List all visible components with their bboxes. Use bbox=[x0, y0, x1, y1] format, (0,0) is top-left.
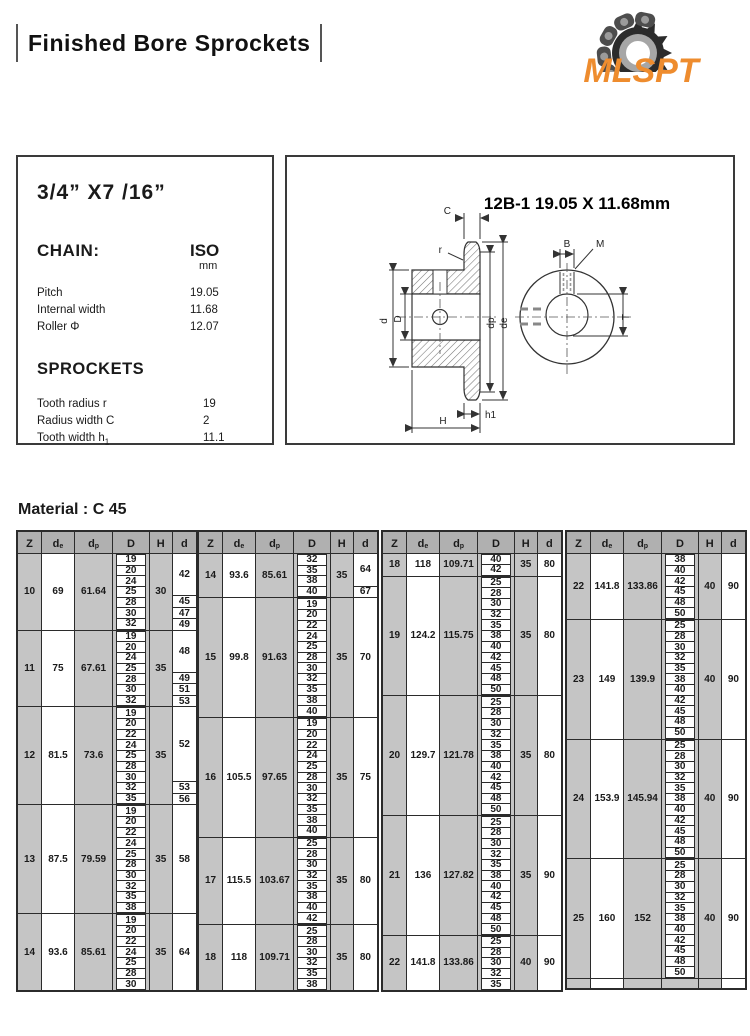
cell-hub-diameter: 80 bbox=[538, 554, 561, 576]
cell-hub-width: 40 bbox=[699, 859, 722, 978]
hub-diameter-segment: 75 bbox=[354, 718, 377, 837]
hub-diameter-segment: 45 bbox=[173, 595, 196, 606]
bore-cell: 32 bbox=[116, 695, 145, 707]
table-group: 2516015225283032353840424548504090 bbox=[567, 859, 745, 979]
company-logo: MLSPT bbox=[562, 6, 722, 102]
drawing-box: 12B-1 19.05 X 11.68mm C r d D bbox=[285, 155, 735, 445]
cell-tip-diameter: 153.9 bbox=[591, 740, 624, 859]
cell-hub-width: 35 bbox=[150, 914, 173, 990]
sprocket-spec-rows: Tooth radius r 19 Radius width C 2 Tooth… bbox=[37, 396, 252, 450]
cell-hub-width: 35 bbox=[515, 816, 538, 935]
material-label: Material : C 45 bbox=[18, 501, 126, 519]
cell-hub-width: 35 bbox=[150, 805, 173, 913]
cell-bores: 4042 bbox=[478, 554, 514, 576]
cell-teeth: 14 bbox=[18, 914, 42, 990]
table-header-row: ZdedpDHd bbox=[567, 532, 745, 554]
cell-teeth: 21 bbox=[383, 816, 407, 935]
cell-pitch-diameter: 73.6 bbox=[75, 707, 113, 804]
cell-tip-diameter: 105.5 bbox=[223, 718, 256, 837]
dim-label-d: d bbox=[379, 318, 390, 324]
page-title: Finished Bore Sprockets bbox=[28, 30, 310, 57]
title-bar-left bbox=[16, 24, 18, 62]
cell-pitch-diameter: 61.64 bbox=[75, 554, 113, 630]
spec-row-label: Internal width bbox=[37, 302, 190, 319]
spec-row: Roller Φ 12.07 bbox=[37, 319, 252, 336]
cell-hub-width: 35 bbox=[515, 554, 538, 576]
standard-name: ISO bbox=[190, 241, 252, 261]
cell-tip-diameter: 141.8 bbox=[407, 936, 440, 990]
spec-row-value: 19 bbox=[190, 396, 252, 413]
sprocket-table-4: ZdedpDHd22141.8133.863840424548504090231… bbox=[565, 530, 747, 990]
cell-hub-diameter: 80 bbox=[354, 838, 377, 924]
cell-hub-diameter: 70 bbox=[354, 598, 377, 717]
column-header: dp bbox=[256, 532, 294, 553]
cell-tip-diameter: 81.5 bbox=[42, 707, 75, 804]
dim-label-M: M bbox=[596, 239, 604, 250]
cell-teeth: 18 bbox=[199, 925, 223, 990]
dim-label-r: r bbox=[439, 245, 443, 256]
cell-bores: 19202425283032 bbox=[113, 554, 149, 630]
table-header-row: ZdedpDHd bbox=[383, 532, 561, 554]
chain-standard: ISO mm bbox=[190, 241, 252, 272]
cell-hub-diameter: 80 bbox=[538, 577, 561, 696]
hub-diameter-segment: 49 bbox=[173, 618, 196, 629]
hub-diameter-segment: 53 bbox=[173, 781, 196, 793]
table-group: 19124.2115.7525283032353840424548503580 bbox=[383, 577, 561, 697]
cell-hub-width: 30 bbox=[150, 554, 173, 630]
table-group: 1281.573.619202224252830323535525356 bbox=[18, 707, 196, 805]
cell-teeth: 16 bbox=[199, 718, 223, 837]
table-group: 117567.61192024252830323548495153 bbox=[18, 631, 196, 708]
bore-cell: 42 bbox=[481, 564, 510, 575]
table-group: 21136127.8225283032353840424548503590 bbox=[383, 816, 561, 936]
cell-bores: 192022242528303235 bbox=[113, 707, 149, 804]
catalog-page: Finished Bore Sprockets bbox=[0, 0, 750, 1036]
hub-diameter-segment: 80 bbox=[354, 838, 377, 924]
cell-hub-width: 35 bbox=[150, 631, 173, 707]
bore-cell: 50 bbox=[481, 803, 510, 815]
hub-diameter-segment: 90 bbox=[722, 554, 745, 619]
column-header: dp bbox=[624, 532, 662, 553]
table-header-row: ZdedpDHd bbox=[199, 532, 377, 554]
column-header: de bbox=[407, 532, 440, 553]
cell-pitch-diameter: 115.75 bbox=[440, 577, 478, 696]
hub-diameter-segment: 90 bbox=[722, 859, 745, 978]
cell-hub-diameter: 58 bbox=[173, 805, 196, 913]
cell-hub-diameter: 48495153 bbox=[173, 631, 196, 707]
title-bar-right bbox=[320, 24, 322, 62]
table-group: 1387.579.59192022242528303235383558 bbox=[18, 805, 196, 914]
drawing-title: 12B-1 19.05 X 11.68mm bbox=[484, 194, 670, 213]
bore-cell: 35 bbox=[481, 978, 510, 990]
hub-diameter-segment: 51 bbox=[173, 683, 196, 694]
cell-hub-width: 35 bbox=[331, 925, 354, 990]
cell-tip-diameter: 160 bbox=[591, 859, 624, 978]
table-group: 106961.64192024252830323042454749 bbox=[18, 554, 196, 631]
sprockets-section-label: SPROCKETS bbox=[37, 360, 252, 379]
hub-diameter-segment: 70 bbox=[354, 598, 377, 717]
bore-cell: 30 bbox=[116, 978, 145, 990]
hub-diameter-segment: 52 bbox=[173, 707, 196, 781]
hub-diameter-segment: 58 bbox=[173, 805, 196, 913]
cell-tip-diameter: 87.5 bbox=[42, 805, 75, 913]
bore-cell: 50 bbox=[665, 847, 694, 859]
dim-label-T: T bbox=[621, 314, 632, 320]
column-header: Z bbox=[199, 532, 223, 553]
dim-label-de: de bbox=[499, 317, 510, 329]
cell-tip-diameter: 149 bbox=[591, 620, 624, 739]
spec-row: Radius width C 2 bbox=[37, 413, 252, 430]
cell-teeth: 18 bbox=[383, 554, 407, 576]
cell-tip-diameter: 93.6 bbox=[223, 554, 256, 597]
column-header: dp bbox=[75, 532, 113, 553]
cell-hub-diameter: 6467 bbox=[354, 554, 377, 597]
table-group: 23149139.925283032353840424548504090 bbox=[567, 620, 745, 740]
cell-hub-width: 35 bbox=[515, 696, 538, 815]
spec-row-value: 2 bbox=[190, 413, 252, 430]
cell-bores: 2528303235384042454850 bbox=[662, 740, 698, 859]
cell-hub-diameter: 90 bbox=[722, 554, 745, 619]
empty-cell bbox=[624, 979, 662, 988]
chain-size-title: 3/4” X7 /16” bbox=[37, 181, 252, 205]
spec-row-label: Pitch bbox=[37, 285, 190, 302]
cell-hub-diameter: 525356 bbox=[173, 707, 196, 804]
cell-tip-diameter: 129.7 bbox=[407, 696, 440, 815]
table-group: 1493.685.61192022242528303564 bbox=[18, 914, 196, 990]
cell-hub-width: 35 bbox=[331, 838, 354, 924]
cell-bores: 19202224252830 bbox=[113, 914, 149, 990]
cell-hub-width: 35 bbox=[331, 718, 354, 837]
cell-pitch-diameter: 133.86 bbox=[624, 554, 662, 619]
cell-teeth: 14 bbox=[199, 554, 223, 597]
empty-cell bbox=[591, 979, 624, 988]
empty-cell bbox=[662, 979, 698, 988]
hub-diameter-segment: 48 bbox=[173, 631, 196, 672]
cell-bores: 384042454850 bbox=[662, 554, 698, 619]
cell-bores: 19202425283032 bbox=[113, 631, 149, 707]
cell-pitch-diameter: 103.67 bbox=[256, 838, 294, 924]
table-group: 24153.9145.9425283032353840424548504090 bbox=[567, 740, 745, 860]
cell-teeth: 10 bbox=[18, 554, 42, 630]
cell-tip-diameter: 118 bbox=[223, 925, 256, 990]
cell-teeth: 22 bbox=[383, 936, 407, 990]
sprocket-table-2: ZdedpDHd1493.685.61323538403564671599.89… bbox=[197, 530, 379, 992]
sprocket-table-3: ZdedpDHd18118109.714042358019124.2115.75… bbox=[381, 530, 563, 992]
cell-tip-diameter: 136 bbox=[407, 816, 440, 935]
bore-cell: 50 bbox=[665, 607, 694, 619]
cell-pitch-diameter: 91.63 bbox=[256, 598, 294, 717]
chain-section-header: CHAIN: ISO mm bbox=[37, 241, 252, 272]
cell-teeth: 13 bbox=[18, 805, 42, 913]
cell-hub-width: 35 bbox=[331, 554, 354, 597]
cell-tip-diameter: 99.8 bbox=[223, 598, 256, 717]
cell-bores: 2528303235384042454850 bbox=[662, 620, 698, 739]
cell-hub-diameter: 90 bbox=[538, 936, 561, 990]
cell-teeth: 22 bbox=[567, 554, 591, 619]
dim-label-h1: h1 bbox=[485, 410, 497, 421]
table-group: 1493.685.6132353840356467 bbox=[199, 554, 377, 598]
cell-teeth: 20 bbox=[383, 696, 407, 815]
spec-row-label: Radius width C bbox=[37, 413, 190, 430]
hub-diameter-segment: 42 bbox=[173, 554, 196, 595]
cell-pitch-diameter: 85.61 bbox=[256, 554, 294, 597]
chain-section-label: CHAIN: bbox=[37, 241, 190, 261]
table-footer-row bbox=[567, 979, 745, 988]
cell-tip-diameter: 69 bbox=[42, 554, 75, 630]
spec-row: Pitch 19.05 bbox=[37, 285, 252, 302]
table-group: 16105.597.6519202224252830323538403575 bbox=[199, 718, 377, 838]
cell-pitch-diameter: 121.78 bbox=[440, 696, 478, 815]
cell-hub-width: 40 bbox=[699, 620, 722, 739]
hub-diameter-segment: 80 bbox=[538, 577, 561, 696]
column-header: H bbox=[515, 532, 538, 553]
spec-row: Internal width 11.68 bbox=[37, 302, 252, 319]
cell-hub-diameter: 64 bbox=[173, 914, 196, 990]
chain-spec-rows: Pitch 19.05 Internal width 11.68 Roller … bbox=[37, 285, 252, 336]
table-group: 18118109.7140423580 bbox=[383, 554, 561, 577]
cell-teeth: 19 bbox=[383, 577, 407, 696]
chain-spec-box: 3/4” X7 /16” CHAIN: ISO mm Pitch 19.05 I… bbox=[16, 155, 274, 445]
cell-hub-diameter: 90 bbox=[722, 859, 745, 978]
hub-diameter-segment: 67 bbox=[354, 586, 377, 598]
hub-diameter-segment: 90 bbox=[538, 936, 561, 990]
spec-row-value: 11.68 bbox=[190, 302, 252, 319]
bore-cell: 50 bbox=[665, 966, 694, 978]
cell-teeth: 25 bbox=[567, 859, 591, 978]
spec-row-value: 12.07 bbox=[190, 319, 252, 336]
cell-hub-width: 40 bbox=[515, 936, 538, 990]
sprocket-table-1: ZdedpDHd106961.6419202425283032304245474… bbox=[16, 530, 198, 992]
cell-bores: 2528303235384042 bbox=[294, 838, 330, 924]
table-group: 22141.8133.863840424548504090 bbox=[567, 554, 745, 620]
table-header-row: ZdedpDHd bbox=[18, 532, 196, 554]
cell-hub-diameter: 80 bbox=[538, 696, 561, 815]
hub-diameter-segment: 80 bbox=[538, 554, 561, 576]
column-header: d bbox=[354, 532, 377, 553]
logo-text: MLSPT bbox=[562, 52, 720, 91]
cell-pitch-diameter: 97.65 bbox=[256, 718, 294, 837]
bore-cell: 38 bbox=[297, 978, 326, 990]
cell-pitch-diameter: 109.71 bbox=[440, 554, 478, 576]
cell-pitch-diameter: 139.9 bbox=[624, 620, 662, 739]
cell-bores: 1920222425283032353840 bbox=[294, 718, 330, 837]
cell-bores: 252830323538 bbox=[294, 925, 330, 990]
cell-bores: 2528303235384042454850 bbox=[478, 816, 514, 935]
cell-hub-diameter: 90 bbox=[722, 740, 745, 859]
cell-hub-diameter: 75 bbox=[354, 718, 377, 837]
dim-label-B: B bbox=[564, 239, 571, 250]
column-header: d bbox=[722, 532, 745, 553]
hub-diameter-segment: 90 bbox=[538, 816, 561, 935]
column-header: Z bbox=[567, 532, 591, 553]
empty-cell bbox=[699, 979, 722, 988]
column-header: d bbox=[538, 532, 561, 553]
column-header: D bbox=[294, 532, 330, 553]
spec-row-value: 19.05 bbox=[190, 285, 252, 302]
table-group: 17115.5103.6725283032353840423580 bbox=[199, 838, 377, 925]
empty-cell bbox=[567, 979, 591, 988]
page-header: Finished Bore Sprockets bbox=[16, 24, 322, 62]
dim-label-c: C bbox=[444, 206, 451, 217]
hub-diameter-segment: 64 bbox=[354, 554, 377, 586]
cell-pitch-diameter: 127.82 bbox=[440, 816, 478, 935]
hub-diameter-segment: 53 bbox=[173, 695, 196, 706]
cell-hub-diameter: 90 bbox=[722, 620, 745, 739]
column-header: D bbox=[478, 532, 514, 553]
cell-bores: 2528303235384042454850 bbox=[662, 859, 698, 978]
spec-row-label: Roller Φ bbox=[37, 319, 190, 336]
cell-bores: 19202224252830323538 bbox=[113, 805, 149, 913]
cell-hub-width: 35 bbox=[331, 598, 354, 717]
cell-hub-width: 35 bbox=[515, 577, 538, 696]
cell-hub-width: 40 bbox=[699, 740, 722, 859]
cell-teeth: 11 bbox=[18, 631, 42, 707]
cell-bores: 2528303235 bbox=[478, 936, 514, 990]
spec-row-label: Tooth radius r bbox=[37, 396, 190, 413]
dim-label-dp: dp bbox=[486, 317, 497, 329]
cell-hub-width: 35 bbox=[150, 707, 173, 804]
hub-diameter-segment: 49 bbox=[173, 672, 196, 683]
spec-row-value: 11.1 bbox=[190, 430, 252, 450]
bore-cell: 42 bbox=[297, 912, 326, 924]
cell-teeth: 17 bbox=[199, 838, 223, 924]
cell-pitch-diameter: 85.61 bbox=[75, 914, 113, 990]
bore-cell: 50 bbox=[665, 727, 694, 739]
cell-teeth: 15 bbox=[199, 598, 223, 717]
technical-drawing: 12B-1 19.05 X 11.68mm C r d D bbox=[287, 157, 733, 443]
cell-pitch-diameter: 79.59 bbox=[75, 805, 113, 913]
cell-tip-diameter: 93.6 bbox=[42, 914, 75, 990]
column-header: H bbox=[699, 532, 722, 553]
bore-cell: 35 bbox=[116, 793, 145, 805]
cell-hub-diameter: 42454749 bbox=[173, 554, 196, 630]
hub-diameter-segment: 56 bbox=[173, 793, 196, 805]
hub-diameter-segment: 80 bbox=[538, 696, 561, 815]
cell-pitch-diameter: 145.94 bbox=[624, 740, 662, 859]
column-header: Z bbox=[383, 532, 407, 553]
bore-cell: 50 bbox=[481, 923, 510, 935]
hub-diameter-segment: 80 bbox=[354, 925, 377, 990]
cell-bores: 32353840 bbox=[294, 554, 330, 597]
standard-unit: mm bbox=[199, 260, 252, 272]
column-header: de bbox=[42, 532, 75, 553]
spec-row: Tooth radius r 19 bbox=[37, 396, 252, 413]
bore-cell: 50 bbox=[481, 684, 510, 696]
table-group: 22141.8133.8625283032354090 bbox=[383, 936, 561, 990]
cell-hub-diameter: 80 bbox=[354, 925, 377, 990]
column-header: dp bbox=[440, 532, 478, 553]
spec-row: Tooth width h1 11.1 bbox=[37, 430, 252, 450]
column-header: H bbox=[331, 532, 354, 553]
column-header: D bbox=[662, 532, 698, 553]
spec-row-label: Tooth width h1 bbox=[37, 430, 190, 450]
hub-diameter-segment: 90 bbox=[722, 740, 745, 859]
cell-pitch-diameter: 133.86 bbox=[440, 936, 478, 990]
cell-bores: 2528303235384042454850 bbox=[478, 577, 514, 696]
cell-tip-diameter: 115.5 bbox=[223, 838, 256, 924]
cell-tip-diameter: 124.2 bbox=[407, 577, 440, 696]
bore-cell: 40 bbox=[297, 825, 326, 837]
column-header: Z bbox=[18, 532, 42, 553]
section-lower-hatch bbox=[412, 340, 480, 400]
cell-tip-diameter: 141.8 bbox=[591, 554, 624, 619]
bore-cell: 40 bbox=[297, 705, 326, 717]
column-header: d bbox=[173, 532, 196, 553]
cell-bores: 2528303235384042454850 bbox=[478, 696, 514, 815]
column-header: D bbox=[113, 532, 149, 553]
bore-cell: 38 bbox=[116, 902, 145, 914]
dim-label-H: H bbox=[439, 416, 446, 427]
cell-tip-diameter: 75 bbox=[42, 631, 75, 707]
column-header: de bbox=[223, 532, 256, 553]
cell-pitch-diameter: 109.71 bbox=[256, 925, 294, 990]
table-group: 1599.891.6319202224252830323538403570 bbox=[199, 598, 377, 718]
cell-teeth: 24 bbox=[567, 740, 591, 859]
cell-pitch-diameter: 67.61 bbox=[75, 631, 113, 707]
column-header: H bbox=[150, 532, 173, 553]
cell-bores: 1920222425283032353840 bbox=[294, 598, 330, 717]
column-header: de bbox=[591, 532, 624, 553]
bore-cell: 32 bbox=[116, 618, 145, 630]
cell-hub-width: 40 bbox=[699, 554, 722, 619]
cell-teeth: 12 bbox=[18, 707, 42, 804]
empty-cell bbox=[722, 979, 745, 988]
hub-diameter-segment: 47 bbox=[173, 607, 196, 618]
cell-tip-diameter: 118 bbox=[407, 554, 440, 576]
hub-diameter-segment: 90 bbox=[722, 620, 745, 739]
bore-cell: 40 bbox=[297, 586, 326, 598]
cell-pitch-diameter: 152 bbox=[624, 859, 662, 978]
hub-diameter-segment: 64 bbox=[173, 914, 196, 990]
cell-teeth: 23 bbox=[567, 620, 591, 739]
table-group: 18118109.712528303235383580 bbox=[199, 925, 377, 990]
dim-label-D: D bbox=[393, 315, 404, 322]
cell-hub-diameter: 90 bbox=[538, 816, 561, 935]
table-group: 20129.7121.7825283032353840424548503580 bbox=[383, 696, 561, 816]
